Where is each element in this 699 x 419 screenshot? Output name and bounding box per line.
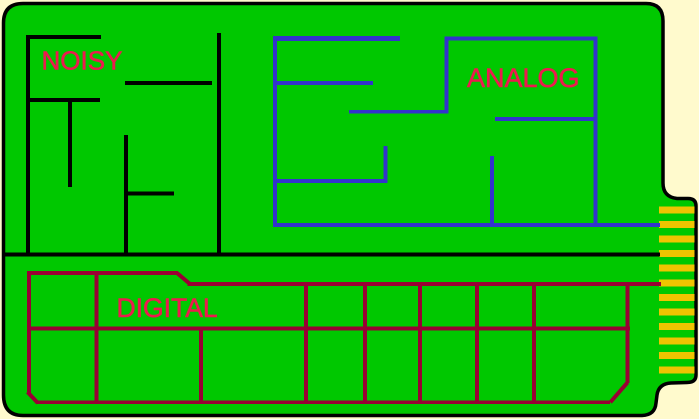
svg-text:ANALOG: ANALOG [467, 63, 580, 93]
svg-text:NOISY: NOISY [42, 46, 123, 76]
svg-text:DIGITAL: DIGITAL [117, 293, 218, 323]
